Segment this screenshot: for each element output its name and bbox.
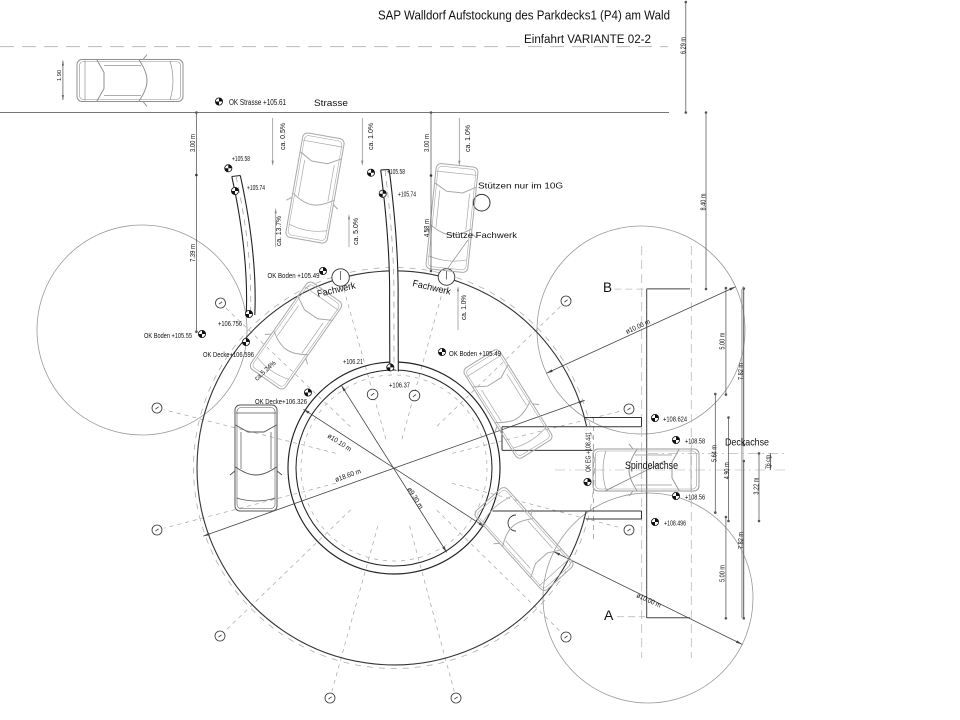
- svg-text:6.29 m: 6.29 m: [681, 37, 688, 54]
- svg-text:OK Boden +105.55: OK Boden +105.55: [144, 331, 192, 340]
- svg-text:ca. 0.5%: ca. 0.5%: [278, 123, 287, 150]
- svg-text:3.00 m: 3.00 m: [188, 134, 197, 152]
- svg-text:OK Boden +105.49: OK Boden +105.49: [449, 349, 501, 358]
- svg-text:Spindelachse: Spindelachse: [625, 460, 678, 472]
- svg-text:3.22 m: 3.22 m: [754, 477, 761, 494]
- svg-text:5.64 m: 5.64 m: [712, 445, 719, 462]
- svg-text:+106.21: +106.21: [343, 357, 363, 366]
- svg-text:+105.74: +105.74: [247, 183, 265, 192]
- svg-text:+106.756: +106.756: [218, 319, 242, 328]
- svg-text:Strasse: Strasse: [314, 98, 348, 109]
- svg-text:+108.624: +108.624: [663, 415, 687, 424]
- svg-text:OK Boden +105.49: OK Boden +105.49: [268, 271, 320, 280]
- svg-text:3.00 m: 3.00 m: [422, 134, 431, 152]
- svg-text:5.00 m: 5.00 m: [720, 332, 727, 349]
- svg-text:+108.56: +108.56: [685, 493, 705, 502]
- svg-text:ca. 1.0%: ca. 1.0%: [459, 295, 468, 320]
- svg-text:A: A: [604, 607, 614, 623]
- svg-text:7.82 m: 7.82 m: [738, 532, 745, 549]
- svg-text:+108.496: +108.496: [664, 519, 686, 528]
- svg-text:7.39 m: 7.39 m: [188, 244, 197, 262]
- svg-text:Stütze Fachwerk: Stütze Fachwerk: [446, 230, 518, 240]
- svg-text:4.58 m: 4.58 m: [422, 219, 431, 237]
- svg-text:Einfahrt VARIANTE 02-2: Einfahrt VARIANTE 02-2: [524, 34, 651, 46]
- svg-text:1.90: 1.90: [57, 70, 63, 81]
- svg-text:OK EG +108.441: OK EG +108.441: [586, 432, 593, 472]
- svg-text:ca. 1.0%: ca. 1.0%: [463, 125, 472, 152]
- svg-text:OK Decke+106.326: OK Decke+106.326: [255, 397, 307, 406]
- svg-text:ca. 5.0%: ca. 5.0%: [351, 218, 360, 245]
- svg-text:OK Decke+106.596: OK Decke+106.596: [203, 350, 254, 359]
- svg-text:ca. 1.0%: ca. 1.0%: [366, 123, 375, 150]
- svg-text:8.40 m: 8.40 m: [701, 193, 708, 210]
- svg-text:SAP Walldorf Aufstockung des P: SAP Walldorf Aufstockung des Parkdecks1 …: [378, 9, 670, 23]
- svg-text:+108.58: +108.58: [685, 437, 705, 446]
- svg-text:7.82 m: 7.82 m: [738, 363, 745, 380]
- svg-text:ca. 13.7%: ca. 13.7%: [274, 216, 283, 246]
- svg-text:OK Strasse +105.61: OK Strasse +105.61: [229, 98, 286, 107]
- svg-text:+106.37: +106.37: [389, 381, 410, 390]
- svg-text:B: B: [603, 280, 612, 295]
- svg-text:+105.58: +105.58: [232, 154, 250, 163]
- svg-text:76 cm: 76 cm: [765, 455, 772, 469]
- svg-text:Deckachse: Deckachse: [725, 436, 769, 448]
- svg-text:Stützen nur im 10G: Stützen nur im 10G: [478, 182, 563, 191]
- svg-text:+105.74: +105.74: [398, 190, 416, 199]
- svg-text:5.00 m: 5.00 m: [720, 565, 727, 582]
- svg-text:+105.58: +105.58: [387, 167, 405, 176]
- svg-text:4.90 m: 4.90 m: [724, 462, 731, 479]
